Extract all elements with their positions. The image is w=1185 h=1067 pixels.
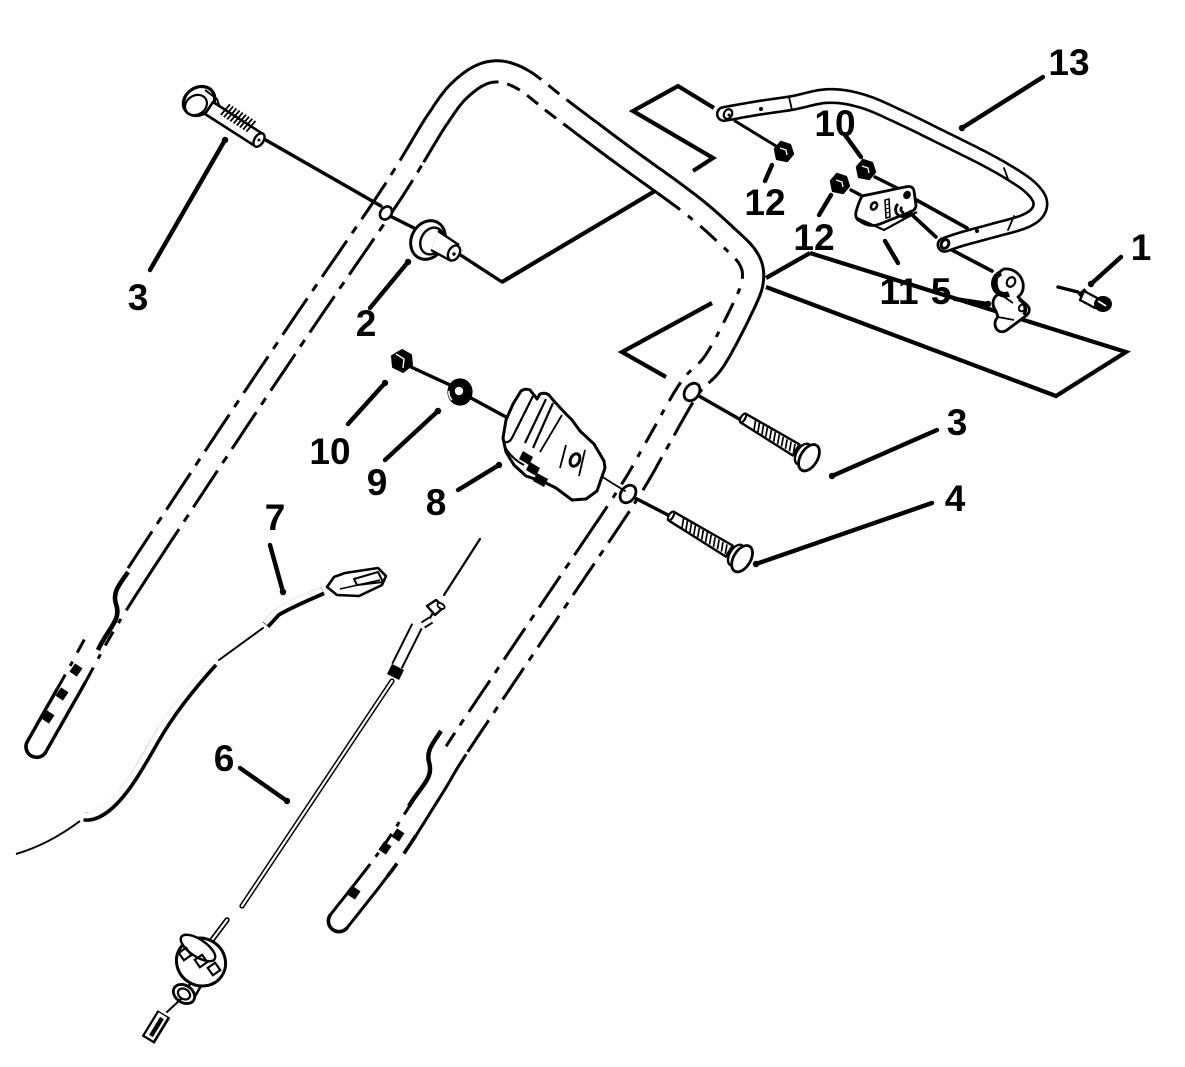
svg-text:2: 2	[356, 303, 377, 344]
svg-text:7: 7	[265, 497, 286, 538]
svg-text:5: 5	[931, 271, 952, 312]
svg-text:1: 1	[1131, 227, 1152, 268]
svg-text:12: 12	[793, 217, 834, 258]
svg-text:3: 3	[947, 402, 968, 443]
svg-text:9: 9	[367, 462, 388, 503]
svg-text:13: 13	[1048, 42, 1089, 83]
svg-text:11: 11	[879, 271, 918, 312]
svg-text:3: 3	[128, 277, 149, 318]
svg-text:10: 10	[309, 431, 350, 472]
svg-text:8: 8	[426, 482, 447, 523]
svg-text:10: 10	[814, 103, 855, 144]
svg-text:4: 4	[945, 478, 966, 519]
svg-text:12: 12	[744, 182, 785, 223]
svg-text:6: 6	[214, 738, 235, 779]
